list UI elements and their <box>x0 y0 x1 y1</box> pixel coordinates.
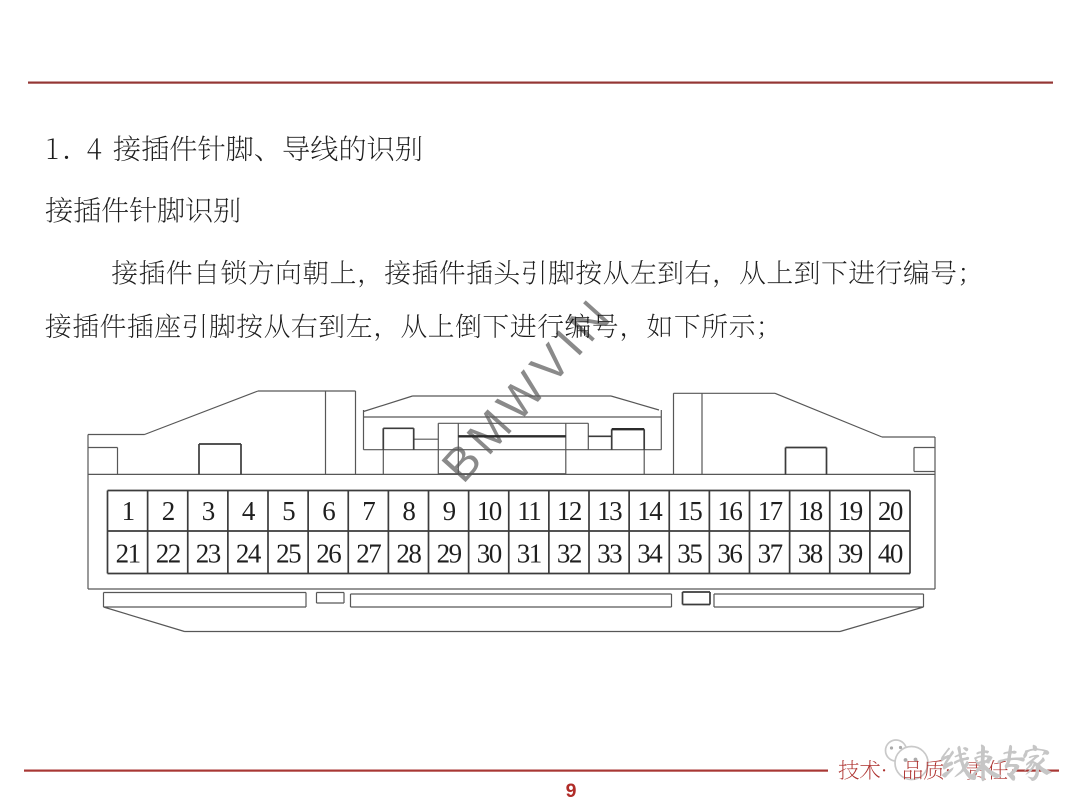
svg-text:30: 30 <box>477 539 502 569</box>
svg-text:35: 35 <box>677 539 702 569</box>
svg-text:16: 16 <box>717 496 742 526</box>
svg-text:37: 37 <box>758 539 783 569</box>
svg-text:13: 13 <box>597 496 622 526</box>
svg-text:34: 34 <box>637 539 663 569</box>
svg-text:10: 10 <box>477 496 502 526</box>
svg-text:2: 2 <box>162 496 175 526</box>
svg-text:14: 14 <box>637 496 663 526</box>
svg-text:29: 29 <box>437 539 462 569</box>
svg-text:7: 7 <box>362 496 375 526</box>
svg-text:22: 22 <box>156 539 181 569</box>
svg-text:6: 6 <box>322 496 335 526</box>
svg-text:24: 24 <box>236 539 262 569</box>
svg-text:40: 40 <box>878 539 903 569</box>
svg-text:25: 25 <box>276 539 301 569</box>
svg-text:18: 18 <box>798 496 823 526</box>
svg-text:19: 19 <box>838 496 863 526</box>
svg-text:3: 3 <box>202 496 215 526</box>
svg-text:31: 31 <box>517 539 541 569</box>
svg-text:5: 5 <box>282 496 295 526</box>
svg-text:23: 23 <box>196 539 221 569</box>
svg-text:21: 21 <box>116 539 140 569</box>
svg-text:28: 28 <box>396 539 421 569</box>
svg-text:17: 17 <box>758 496 783 526</box>
svg-text:12: 12 <box>557 496 582 526</box>
svg-text:9: 9 <box>443 496 456 526</box>
svg-text:36: 36 <box>717 539 742 569</box>
svg-text:11: 11 <box>517 496 540 526</box>
svg-text:1: 1 <box>122 496 134 526</box>
svg-text:4: 4 <box>242 496 256 526</box>
svg-text:27: 27 <box>356 539 381 569</box>
svg-text:39: 39 <box>838 539 863 569</box>
svg-text:9: 9 <box>566 780 577 802</box>
svg-text:15: 15 <box>677 496 702 526</box>
svg-text:32: 32 <box>557 539 582 569</box>
svg-text:BMWVIN: BMWVIN <box>431 286 624 492</box>
svg-text:26: 26 <box>316 539 341 569</box>
svg-text:38: 38 <box>798 539 823 569</box>
svg-text:20: 20 <box>878 496 903 526</box>
svg-text:33: 33 <box>597 539 622 569</box>
svg-text:8: 8 <box>402 496 415 526</box>
